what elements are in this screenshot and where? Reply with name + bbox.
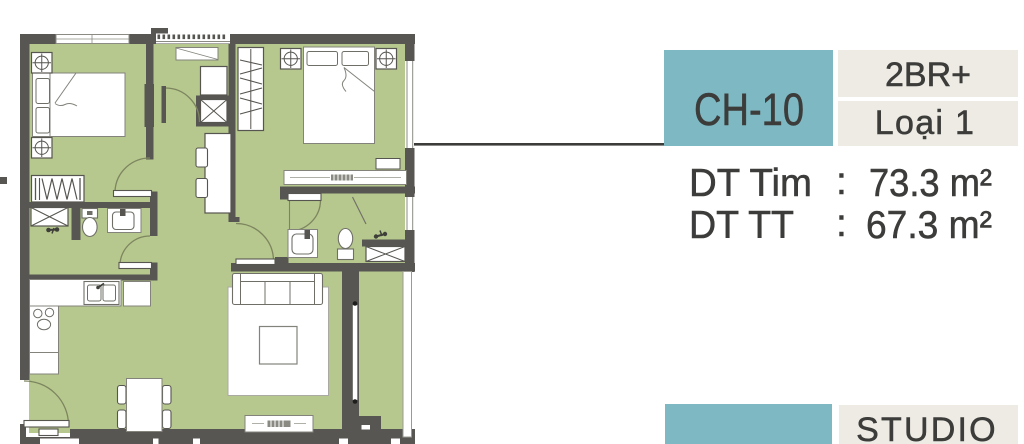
svg-text:DT TT: DT TT bbox=[689, 204, 794, 247]
svg-text:STUDIO: STUDIO bbox=[856, 411, 998, 444]
svg-text:73.3 m²: 73.3 m² bbox=[869, 162, 992, 205]
svg-text:2BR+: 2BR+ bbox=[885, 56, 971, 94]
svg-text::: : bbox=[836, 160, 847, 203]
svg-text::: : bbox=[836, 202, 847, 245]
svg-text:67.3 m²: 67.3 m² bbox=[866, 204, 992, 247]
svg-text:CH-10: CH-10 bbox=[694, 84, 804, 135]
svg-text:Loại 1: Loại 1 bbox=[875, 104, 975, 142]
svg-text:DT Tim: DT Tim bbox=[689, 162, 812, 205]
